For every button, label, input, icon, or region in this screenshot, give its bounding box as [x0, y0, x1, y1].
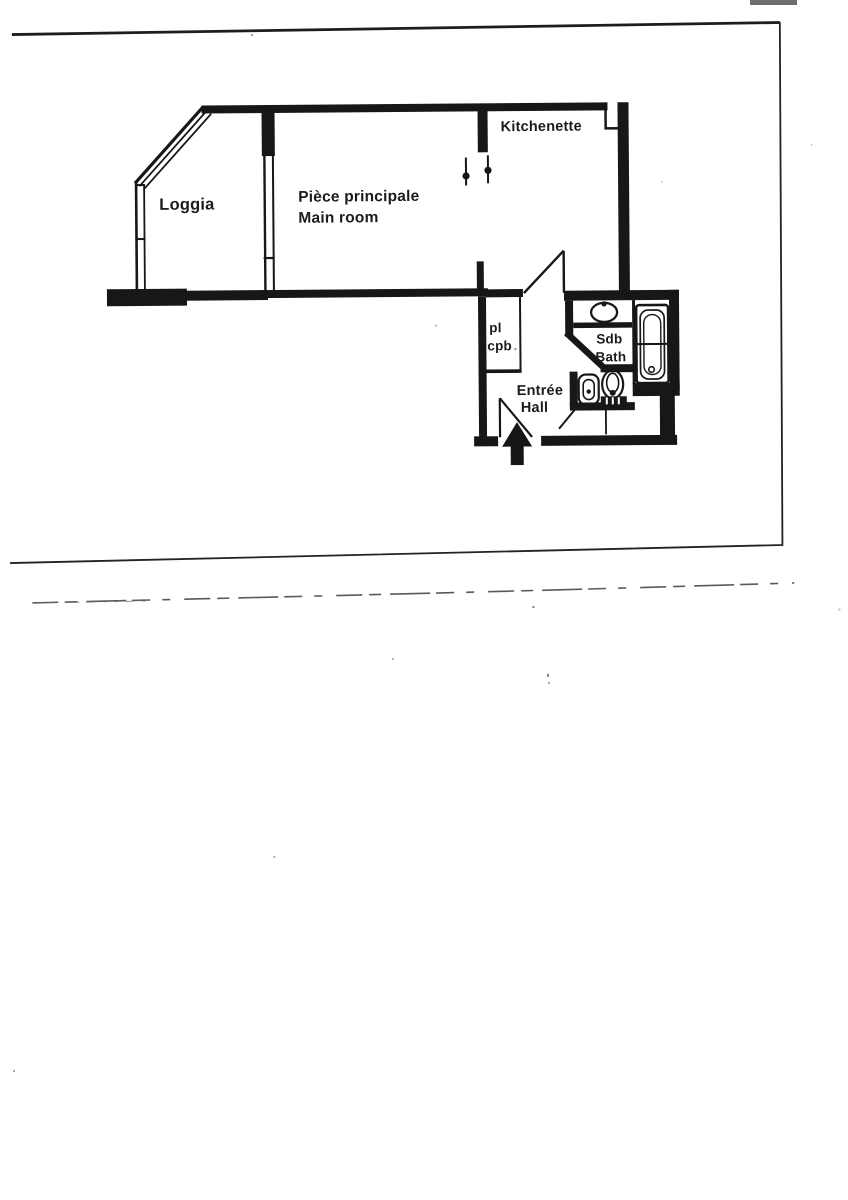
- bathtub-icon: [636, 305, 669, 383]
- closet-right-line: [520, 297, 521, 371]
- hall-bottom-left-stub: [474, 436, 498, 446]
- bathroom-label-en: Bath: [595, 349, 626, 364]
- bathroom-top-wall: [564, 290, 679, 301]
- bathroom-label-fr: Sdb: [596, 331, 622, 346]
- kitchenette-partition: [477, 107, 487, 152]
- loggia-sill-thin: [184, 290, 268, 301]
- floor-plan-scan: Loggia Pièce principale Main room Kitche…: [0, 0, 848, 1200]
- loggia-label: Loggia: [159, 195, 215, 213]
- closet-label-line2: cpb: [487, 338, 512, 353]
- plan-frame-top-border: [12, 22, 780, 34]
- main-room-label-en: Main room: [298, 209, 378, 227]
- entrance-arrow-icon: [502, 422, 532, 465]
- lower-right-wall: [660, 394, 675, 439]
- washbasin-icon: [591, 301, 617, 322]
- closet-top-wall: [486, 289, 523, 297]
- loggia-sill-thick: [107, 289, 187, 307]
- scan-noise-specks: [5, 30, 844, 1072]
- right-wall: [617, 102, 630, 294]
- scan-artifact-bar: [750, 0, 797, 5]
- closet-label-line1: pl: [489, 320, 502, 335]
- wc-room-left-wall: [570, 372, 578, 406]
- scanned-floor-plan-page: Loggia Pièce principale Main room Kitche…: [0, 0, 848, 1200]
- hall-stub-wall: [477, 261, 484, 291]
- loggia-glazing-diagonal: [135, 107, 211, 189]
- hall-bottom-wall: [541, 435, 677, 446]
- loggia-glazing-left: [135, 181, 146, 291]
- plan-drawing: Loggia Pièce principale Main room Kitche…: [5, 22, 844, 1072]
- wc-door-swing: [559, 410, 575, 429]
- bidet-icon: [579, 374, 599, 404]
- toilet-icon: [601, 370, 627, 405]
- basin-counter: [573, 322, 632, 328]
- main-room-door-swing: [524, 251, 564, 293]
- main-room-label-fr: Pièce principale: [298, 188, 420, 206]
- kitchenette-label: Kitchenette: [501, 119, 582, 136]
- loggia-window-divider: [262, 111, 276, 292]
- entrance-label-en: Hall: [521, 400, 549, 416]
- entrance-label-fr: Entrée: [517, 383, 563, 399]
- kitchen-connection-symbols-icon: [462, 155, 491, 185]
- main-room-bottom-wall: [262, 288, 488, 298]
- scan-dashed-line: [32, 583, 794, 603]
- bathroom-right-wall: [669, 290, 680, 390]
